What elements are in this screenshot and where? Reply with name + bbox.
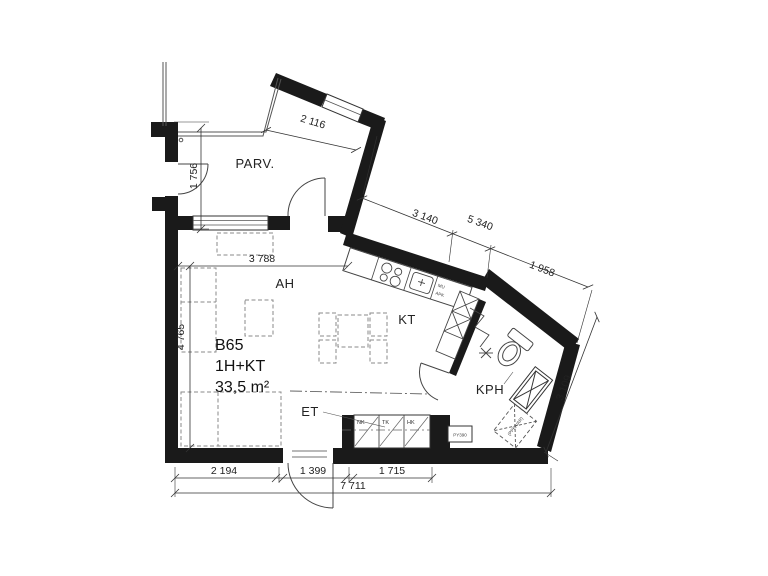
wall-bottom-right	[333, 448, 548, 464]
closet-c-label: HK	[407, 420, 415, 426]
wall-left-upper	[165, 122, 178, 162]
furniture-armchair	[245, 300, 273, 336]
floorplan-page: MU APK	[0, 0, 768, 576]
room-label-entry: ET	[301, 404, 319, 419]
closet-b-label: TK	[382, 420, 389, 426]
windows	[163, 62, 363, 230]
dim-bottom-total: 7 711	[340, 480, 366, 492]
dim-balcony-edge: 2 116	[299, 113, 327, 132]
wall-parv-a	[178, 216, 193, 230]
toilet-icon	[491, 328, 534, 372]
wall-left-neighbor-stub	[152, 197, 165, 211]
balcony-glazing	[163, 62, 281, 142]
washer-icon	[509, 367, 552, 414]
dim-upper-a: 3 140	[411, 207, 440, 227]
dim-bottom-a: 2 194	[211, 465, 237, 477]
wall-bath-top	[481, 269, 579, 352]
floorplan-svg: MU APK	[0, 0, 768, 576]
room-label-living: AH	[275, 276, 294, 291]
window-living-balcony	[193, 216, 268, 230]
dim-bottom-b: 1 399	[300, 465, 326, 477]
wall-pier-right	[430, 415, 450, 448]
room-label-balcony: PARV.	[235, 156, 274, 171]
room-label-bathroom: KPH	[476, 382, 504, 397]
wall-pier-left	[342, 415, 354, 448]
dim-living-width: 3 788	[249, 253, 275, 265]
area-boundary-line	[290, 391, 428, 394]
wall-top-diag-a	[270, 73, 327, 107]
dim-upper-b: 5 340	[466, 213, 495, 233]
closet-run	[354, 415, 430, 448]
furniture-sofa	[181, 392, 281, 446]
washer-reservation-label: (PPK/VAR)	[507, 416, 525, 437]
dim-bottom-c: 1 715	[379, 465, 405, 477]
apartment-area: 33,5 m²	[215, 379, 270, 396]
door-entrance	[288, 451, 333, 508]
apartment-info: B65 1H+KT 33,5 m²	[215, 337, 270, 396]
dim-living-height: 4 765	[175, 324, 187, 350]
room-labels: PARV. AH KT ET KPH	[235, 156, 513, 427]
bathroom-fixtures: (PPK/VAR)	[470, 308, 553, 448]
apartment-layout: 1H+KT	[215, 358, 265, 375]
wall-parv-b	[268, 216, 290, 230]
furniture-dining-set	[319, 313, 387, 363]
window-top-diagonal	[322, 94, 363, 122]
wall-balcony-right	[340, 116, 386, 238]
washer-reservation-box: (PPK/VAR)	[494, 404, 537, 448]
apartment-id: B65	[215, 337, 244, 354]
bathroom-leader-line	[504, 372, 513, 384]
door-bathroom	[420, 363, 449, 400]
entry-closets: NK TK HK PY390	[342, 415, 472, 448]
door-balcony	[288, 178, 325, 216]
duct-label: PY390	[453, 433, 467, 438]
dim-upper-c: 1 958	[528, 259, 557, 280]
dim-parv-height: 1 756	[188, 163, 200, 189]
furniture-sideboard	[217, 233, 273, 255]
room-label-kitchen: KT	[398, 312, 416, 327]
wall-bottom-left	[165, 448, 283, 463]
duct-box: PY390	[448, 426, 472, 442]
